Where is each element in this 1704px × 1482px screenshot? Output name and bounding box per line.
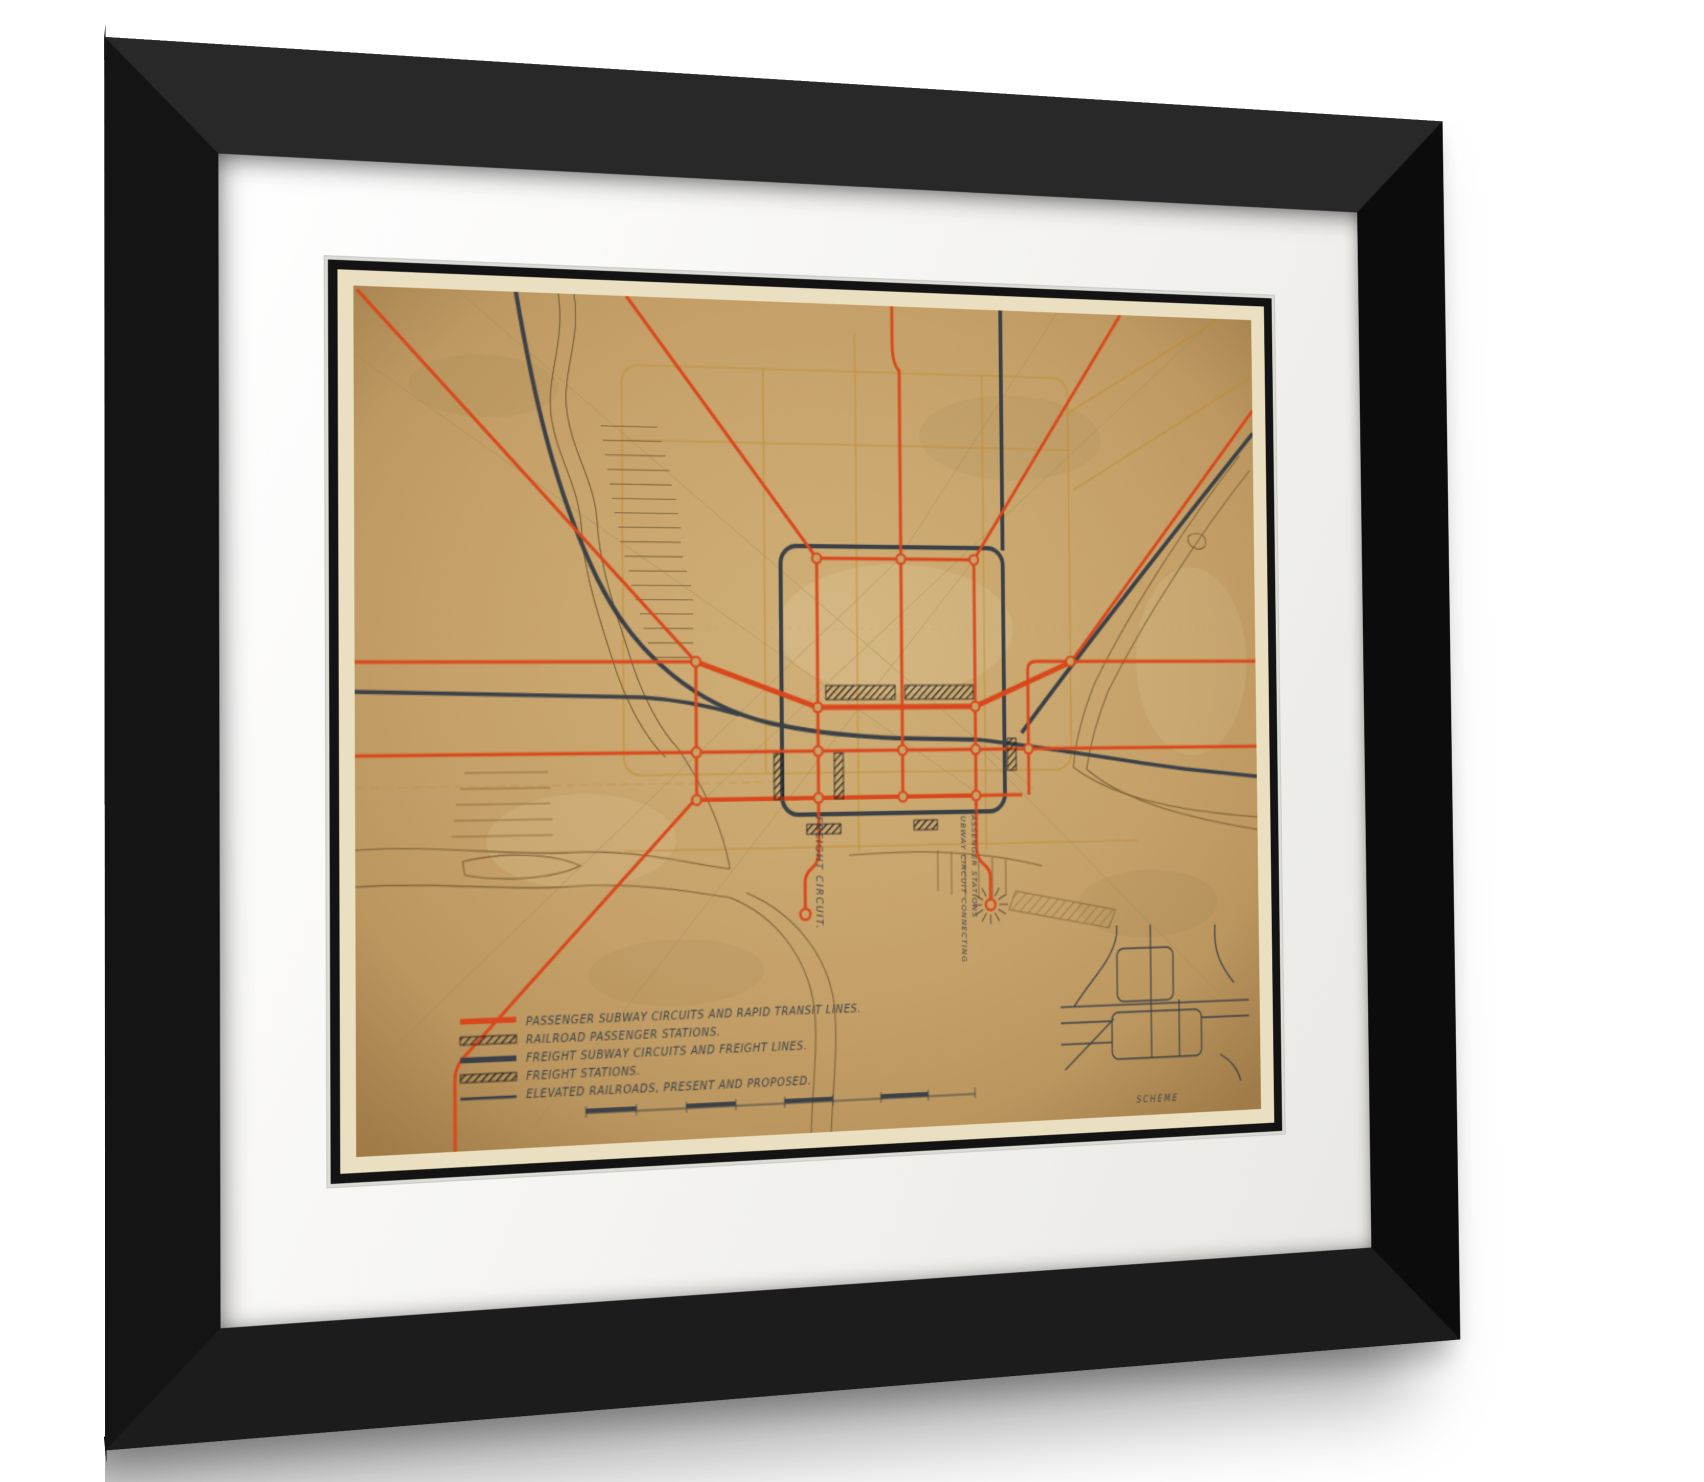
elevated-railroads-swatch (460, 1095, 516, 1101)
subway-circuit-label-line1: SUBWAY CIRCUIT CONNECTING (959, 810, 969, 964)
freight-stations-swatch (460, 1072, 516, 1083)
legend-item-label: PASSENGER SUBWAY CIRCUITS AND RAPID TRAN… (526, 1003, 862, 1029)
railroad-passenger-stations-swatch (460, 1035, 516, 1045)
print-black-trim: FREIGHT CIRCUIT. SUBWAY CIRCUIT CONNECTI… (328, 259, 1282, 1184)
transit-map-svg: FREIGHT CIRCUIT. SUBWAY CIRCUIT CONNECTI… (353, 286, 1261, 1158)
freight-line-swatch (460, 1055, 516, 1063)
freight-circuit-label: FREIGHT CIRCUIT. (813, 816, 824, 930)
map-artwork: FREIGHT CIRCUIT. SUBWAY CIRCUIT CONNECTI… (353, 286, 1261, 1158)
passenger-line-swatch (460, 1017, 516, 1025)
picture-frame: FREIGHT CIRCUIT. SUBWAY CIRCUIT CONNECTI… (104, 37, 1460, 1451)
dock-slips-lower (451, 772, 552, 837)
paper-background (353, 286, 1261, 1158)
photo-scene: FREIGHT CIRCUIT. SUBWAY CIRCUIT CONNECTI… (0, 0, 1704, 1482)
legend-item-label: FREIGHT STATIONS. (526, 1065, 641, 1083)
white-mat: FREIGHT CIRCUIT. SUBWAY CIRCUIT CONNECTI… (218, 154, 1371, 1329)
legend-item-label: FREIGHT SUBWAY CIRCUITS AND FREIGHT LINE… (526, 1040, 808, 1065)
frame-front-face: FREIGHT CIRCUIT. SUBWAY CIRCUIT CONNECTI… (104, 37, 1460, 1451)
subway-circuit-label-line2: PASSENGER STATIONS (969, 809, 978, 918)
legend-item-label: RAILROAD PASSENGER STATIONS. (526, 1026, 721, 1047)
dock-slips-upper (601, 426, 694, 657)
legend-item-label: ELEVATED RAILROADS, PRESENT AND PROPOSED… (526, 1075, 812, 1101)
